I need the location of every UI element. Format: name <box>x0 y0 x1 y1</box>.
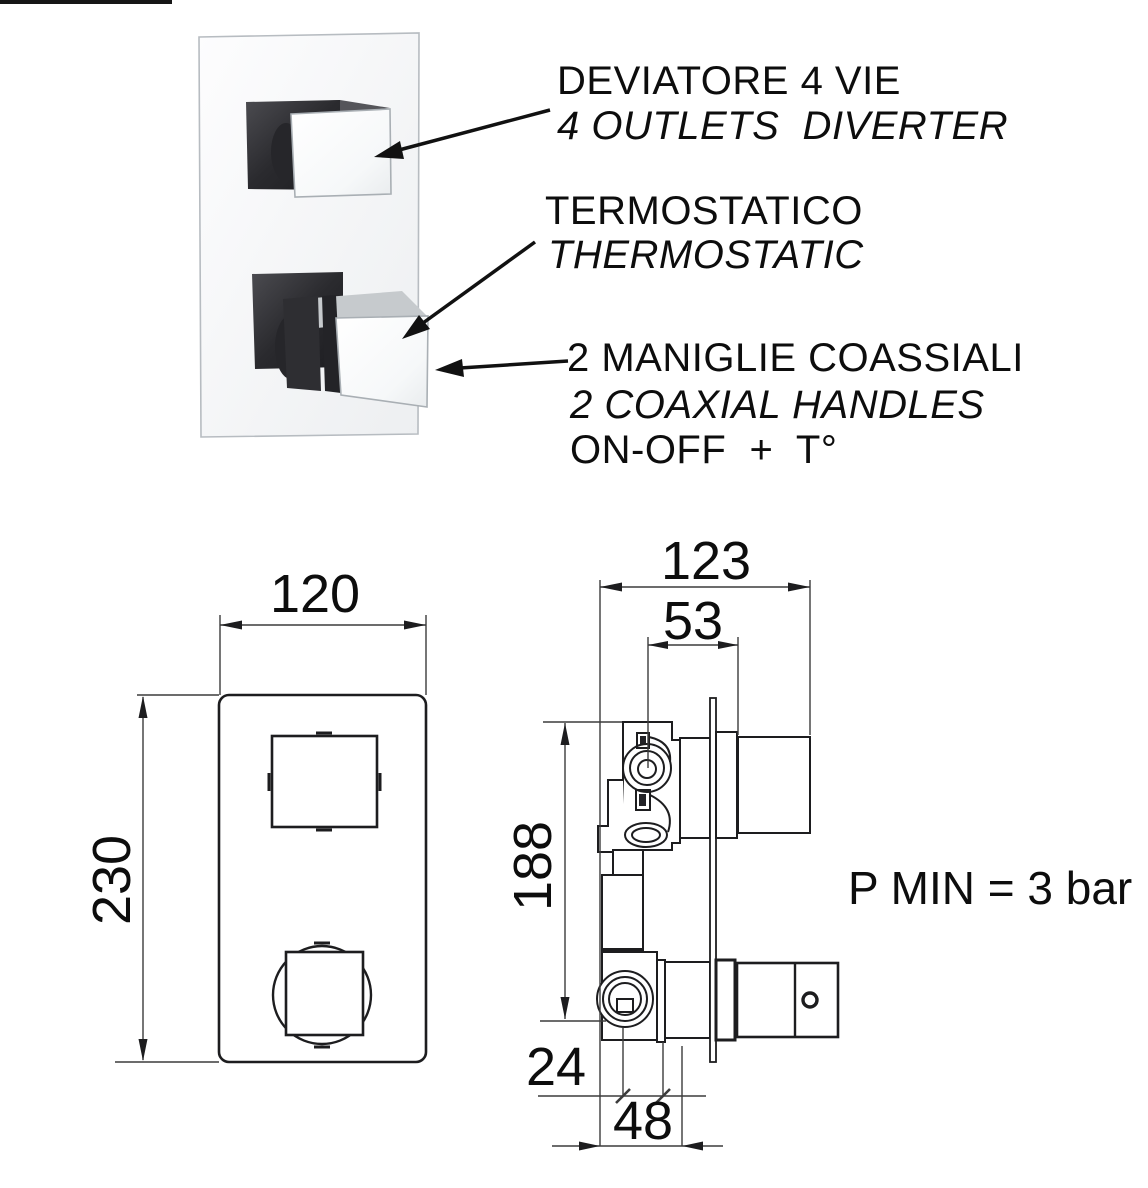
product-render <box>199 33 568 437</box>
side-handles <box>716 732 838 1040</box>
front-diverter-handle <box>269 733 380 830</box>
callout-handles-mode: ON-OFF + T° <box>570 429 837 472</box>
callout-handles-it: 2 MANIGLIE COASSIALI <box>567 337 1024 380</box>
dim-side-offset-a: 24 <box>526 1038 586 1096</box>
callout-diverter-it: DEVIATORE 4 VIE <box>557 60 901 103</box>
dim-side-offset-b: 48 <box>613 1092 673 1150</box>
side-lower-valve <box>597 952 710 1042</box>
dim-front-height: 230 <box>83 835 141 925</box>
technical-drawing-canvas <box>0 0 1148 1188</box>
front-dim-width <box>220 615 426 695</box>
callout-handles-en: 2 COAXIAL HANDLES <box>570 384 985 427</box>
dim-side-depth-total: 123 <box>661 532 751 590</box>
front-view-drawing <box>115 615 426 1062</box>
pressure-note: P MIN = 3 bar <box>848 864 1132 914</box>
diverter-knob <box>246 100 391 197</box>
side-valve-body <box>598 722 710 852</box>
dim-side-height: 188 <box>504 821 562 911</box>
dim-front-width: 120 <box>270 565 360 623</box>
callout-thermo-it: TERMOSTATICO <box>545 190 863 233</box>
side-pipe <box>602 850 643 952</box>
callout-thermo-en: THERMOSTATIC <box>548 234 864 277</box>
front-thermostatic-handle <box>273 943 371 1047</box>
leader-arrow-thermostatic <box>402 242 535 339</box>
callout-diverter-en: 4 OUTLETS DIVERTER <box>557 105 1008 148</box>
dim-side-depth-inner: 53 <box>663 592 723 650</box>
leader-arrow-handles <box>435 359 568 377</box>
datasheet-page: DEVIATORE 4 VIE 4 OUTLETS DIVERTER TERMO… <box>0 0 1148 1188</box>
